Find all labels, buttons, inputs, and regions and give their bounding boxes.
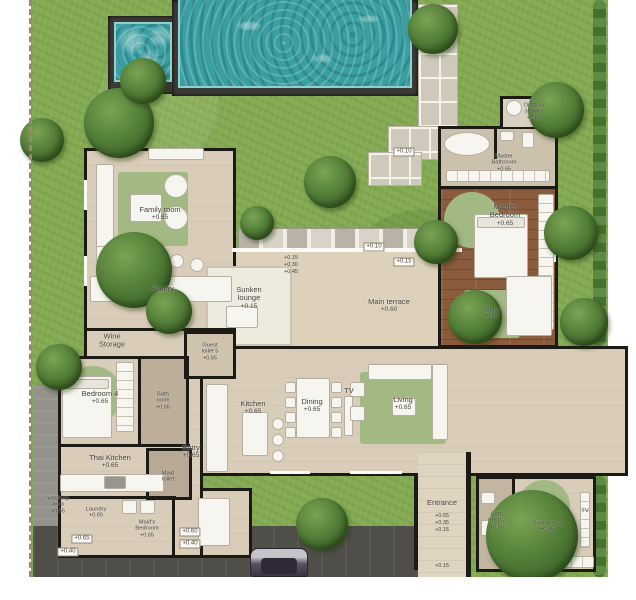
room-name: Bath room 2 bbox=[488, 511, 506, 523]
marker-plus065-drive: +0.65 bbox=[71, 535, 92, 544]
room-name: Bath room bbox=[156, 391, 169, 403]
room-name: Maid toilet bbox=[162, 471, 175, 483]
label-bedroom2: Bedroom 2+0.65 bbox=[533, 521, 561, 534]
wall-bed4-bath bbox=[138, 356, 141, 444]
room-elevation: +0.65 bbox=[201, 355, 218, 361]
wall-bath-entry bbox=[186, 356, 189, 444]
room-name: Entry bbox=[182, 443, 200, 452]
window-living-south-1 bbox=[270, 471, 310, 474]
kitchen-stool-2 bbox=[272, 434, 284, 446]
label-dining: Dining+0.65 bbox=[301, 398, 322, 414]
car-roof bbox=[261, 558, 297, 574]
hedge-right-top bbox=[593, 0, 606, 346]
label-maids-bedroom: Maid's Bedroom+0.65 bbox=[135, 519, 159, 538]
label-thai-kitchen: Thai Kitchen+0.65 bbox=[89, 454, 131, 470]
room-elevation: +0.55 bbox=[47, 508, 68, 514]
dining-chair-r1 bbox=[331, 382, 342, 393]
kitchen-stool-1 bbox=[272, 418, 284, 430]
kitchen-island bbox=[242, 412, 268, 456]
maids-bed bbox=[198, 498, 230, 546]
label-guest-toilet: Guest toilet 5+0.65 bbox=[201, 342, 218, 361]
site-boundary-left bbox=[29, 0, 32, 577]
room-name: Wine Storage bbox=[99, 332, 125, 349]
room-elevation: +0.65 bbox=[301, 407, 322, 414]
room-name: Thai Kitchen bbox=[89, 453, 131, 462]
label-bedroom4: Bedroom 4+0.65 bbox=[82, 390, 119, 406]
thai-kitchen-stove bbox=[104, 476, 126, 489]
marker-plus030-steps: +0.30 bbox=[284, 262, 298, 268]
room-name: Dining bbox=[301, 397, 322, 406]
label-sunken-lounge: Sunken lounge+0.15 bbox=[236, 286, 261, 310]
dining-chair-r2 bbox=[331, 397, 342, 408]
wall-entrance-right bbox=[466, 452, 471, 577]
label-pantry: Pantry bbox=[152, 285, 174, 293]
dining-chair-r4 bbox=[331, 427, 342, 438]
room-name: Main terrace bbox=[368, 297, 410, 306]
tree-16 bbox=[296, 498, 348, 550]
marker-plus040-drive-right: +0.40 bbox=[179, 540, 200, 549]
kitchen-stool-3 bbox=[272, 450, 284, 462]
pantry-stool-3 bbox=[190, 258, 204, 272]
laundry-machine-2 bbox=[140, 500, 155, 514]
kitchen-counter bbox=[206, 384, 228, 472]
room-elevation: +0.65 bbox=[135, 532, 159, 538]
room-elevation: +0.15 bbox=[236, 303, 261, 310]
room-name: Maid's Bedroom bbox=[135, 519, 159, 531]
wall-bed4-thaikitchen bbox=[58, 444, 190, 447]
window-living-south-2 bbox=[350, 471, 402, 474]
marker-plus015-steps: +0.15 bbox=[284, 255, 298, 261]
marker-plus015-entrance-south: +0.15 bbox=[435, 563, 449, 569]
tree-6 bbox=[36, 344, 82, 390]
pantry-stool-2 bbox=[170, 254, 184, 268]
marker-plus035-entrance: +0.35 bbox=[435, 520, 449, 526]
label-outdoor-shower: Outdoor shower+0.55 bbox=[524, 102, 545, 121]
room-name: Bedroom 4 bbox=[82, 389, 119, 398]
wall-laundry-maid bbox=[172, 500, 175, 558]
room-name: Master Bathroom bbox=[491, 153, 516, 165]
room-name: Entrance bbox=[427, 498, 457, 507]
room-elevation: +0.65 bbox=[393, 405, 413, 412]
marker-plus040-drive-left: +0.40 bbox=[57, 548, 78, 557]
bedroom4-wardrobe bbox=[116, 362, 134, 432]
room-elevation: +0.65 bbox=[490, 220, 520, 227]
living-sofa-top bbox=[368, 364, 432, 380]
floor-plan-canvas: Family room+0.65 Pantry Wine Storage Gue… bbox=[0, 0, 636, 600]
label-living: Living+0.65 bbox=[393, 396, 413, 412]
room-name: Guest toilet 5 bbox=[201, 342, 218, 354]
marker-plus060-drive: +0.60 bbox=[179, 528, 200, 537]
family-armchair-1 bbox=[164, 174, 188, 198]
bathroom2-sink bbox=[481, 492, 495, 504]
dining-chair-l2 bbox=[285, 397, 296, 408]
label-tv2: TV bbox=[581, 508, 588, 514]
room-elevation: +0.65 bbox=[156, 404, 170, 410]
bedroom2-tv-wall bbox=[580, 492, 590, 548]
marker-plus025-drive: +0.25 bbox=[63, 565, 77, 571]
tree-2 bbox=[120, 58, 166, 104]
tree-10 bbox=[408, 4, 458, 54]
car bbox=[250, 548, 308, 577]
dining-chair-r3 bbox=[331, 412, 342, 423]
marker-plus015-entrance: +0.15 bbox=[435, 527, 449, 533]
marker-plus015-terrace: +0.15 bbox=[393, 258, 414, 267]
tree-3 bbox=[20, 118, 64, 162]
room-name: TV bbox=[344, 386, 354, 395]
label-entrance: Entrance bbox=[427, 499, 457, 507]
living-armchair-2 bbox=[350, 406, 365, 421]
room-elevation: +0.55 bbox=[524, 115, 545, 121]
room-elevation: +0.65 bbox=[240, 409, 265, 416]
room-name: Family room bbox=[139, 205, 180, 214]
label-family-room: Family room+0.65 bbox=[139, 206, 180, 222]
room-elevation: +0.65 bbox=[533, 527, 561, 533]
label-kitchen: Kitchen+0.65 bbox=[240, 400, 265, 416]
label-main-terrace: Main terrace+0.60 bbox=[368, 298, 410, 314]
room-name: washing area bbox=[47, 495, 68, 507]
room-elevation: +0.65 bbox=[89, 463, 131, 470]
room-elevation: +0.65 bbox=[182, 453, 200, 460]
dining-chair-l1 bbox=[285, 382, 296, 393]
tree-5 bbox=[146, 288, 192, 334]
room-name: Pantry bbox=[152, 284, 174, 293]
label-maid-toilet: Maid toilet bbox=[162, 471, 175, 484]
tree-12 bbox=[544, 206, 598, 260]
marker-plus010-path: +0.10 bbox=[393, 148, 414, 157]
label-washing-area: washing area+0.55 bbox=[47, 495, 68, 514]
label-master-bathroom: Master Bathroom+0.65 bbox=[491, 153, 516, 172]
dining-chair-l3 bbox=[285, 412, 296, 423]
label-sitting: Sitting+0.65 bbox=[483, 308, 499, 321]
margin-bottom bbox=[0, 577, 636, 600]
master-bathtub bbox=[444, 132, 490, 156]
laundry-machine-1 bbox=[122, 500, 137, 514]
label-bathroom2: Bath room 2+0.65 bbox=[488, 511, 506, 530]
marker-plus065-entrance: +0.65 bbox=[435, 513, 449, 519]
room-elevation: +0.65 bbox=[86, 513, 107, 519]
sun-lounger bbox=[148, 148, 204, 160]
room-name: Master Bedroom bbox=[490, 202, 520, 219]
living-sofa-right bbox=[432, 364, 448, 440]
margin-right bbox=[630, 0, 636, 577]
outdoor-shower-head bbox=[506, 100, 522, 116]
tree-13 bbox=[560, 298, 608, 346]
label-tv: TV bbox=[344, 387, 354, 395]
dining-chair-l4 bbox=[285, 427, 296, 438]
window-family-west-2 bbox=[84, 256, 87, 286]
room-name: Sunken lounge bbox=[236, 285, 261, 302]
marker-plus010-terrace: +0.10 bbox=[363, 243, 384, 252]
room-elevation: +0.65 bbox=[82, 399, 119, 406]
room-name: Outdoor shower bbox=[524, 102, 545, 114]
window-family-west-1 bbox=[84, 180, 87, 210]
room-elevation: +0.65 bbox=[491, 166, 516, 172]
room-elevation: +0.60 bbox=[368, 307, 410, 314]
room-name: Kitchen bbox=[240, 399, 265, 408]
tree-8 bbox=[240, 206, 274, 240]
room-name: Living bbox=[393, 395, 413, 404]
room-elevation: +0.65 bbox=[139, 215, 180, 222]
label-master-bedroom: Master Bedroom+0.65 bbox=[490, 203, 520, 227]
family-sofa-vertical bbox=[96, 164, 114, 250]
stepping-stones-b bbox=[368, 152, 422, 186]
wall-masterbath-bed bbox=[438, 186, 558, 189]
wall-thai-laundry bbox=[58, 496, 176, 499]
marker-plus045-steps: +0.45 bbox=[284, 269, 298, 275]
room-name: TV bbox=[581, 508, 588, 514]
master-sink bbox=[500, 131, 514, 141]
master-toilet bbox=[522, 132, 534, 148]
tree-15 bbox=[486, 490, 578, 582]
tree-7 bbox=[304, 156, 356, 208]
tree-9 bbox=[414, 220, 458, 264]
room-elevation: +0.65 bbox=[483, 314, 499, 320]
wall-entrance-left bbox=[414, 476, 418, 570]
room-elevation: +0.65 bbox=[488, 524, 506, 530]
label-entry: Entry+0.65 bbox=[182, 444, 200, 460]
main-pool-water bbox=[178, 0, 412, 88]
label-bathroom4: Bath room+0.65 bbox=[156, 391, 170, 410]
sitting-sofa bbox=[506, 276, 552, 336]
label-wine-storage: Wine Storage bbox=[99, 333, 125, 350]
label-laundry: Laundry+0.65 bbox=[86, 507, 107, 520]
